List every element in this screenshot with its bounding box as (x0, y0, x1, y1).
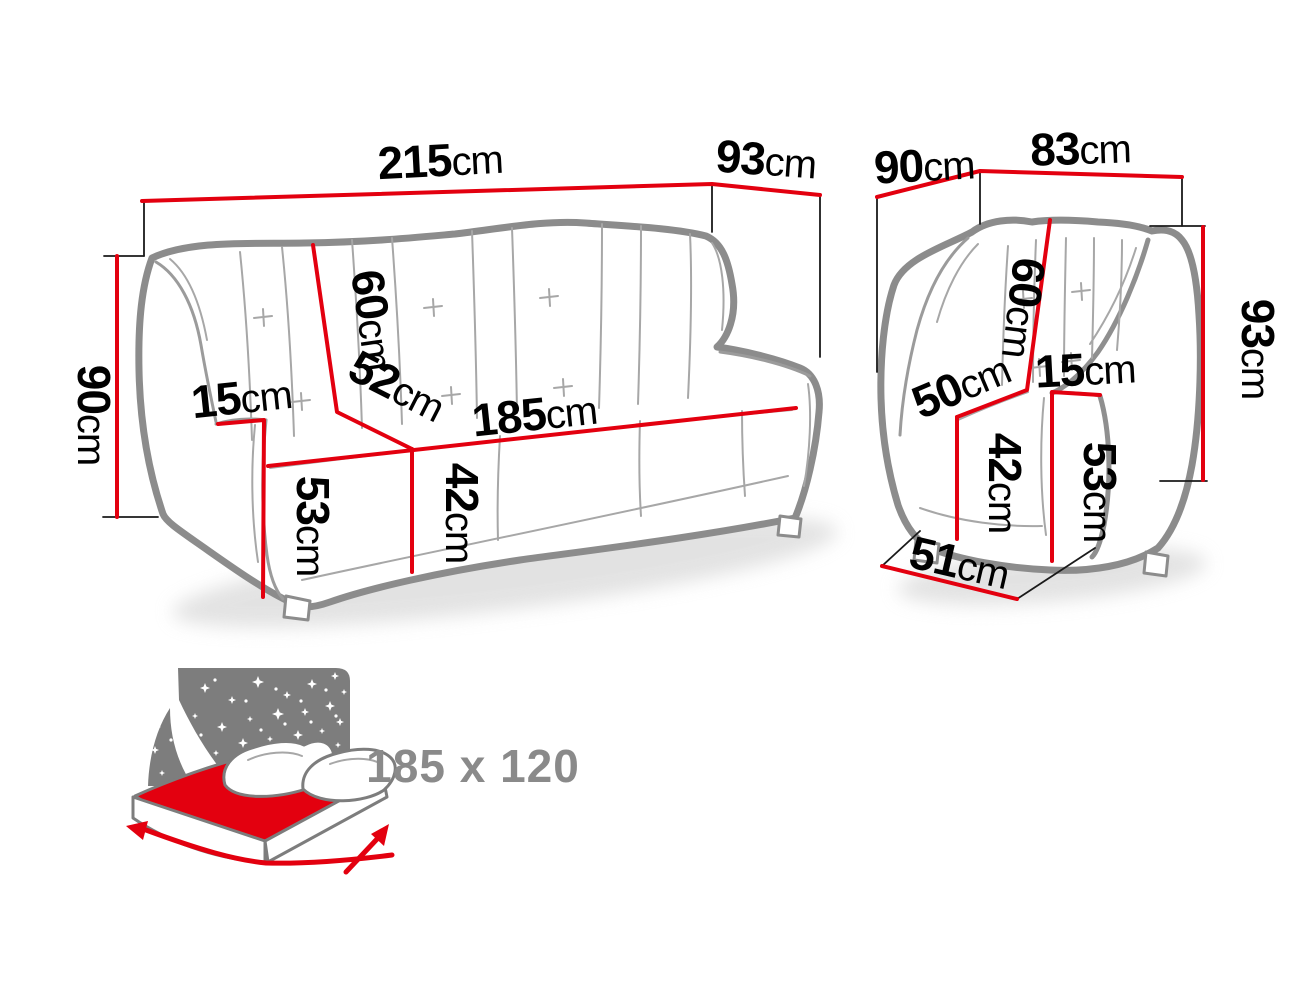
star-dot (169, 738, 172, 741)
bed-width-arrowhead (126, 821, 148, 840)
sofa-foot (778, 516, 801, 537)
star-dot (213, 678, 216, 681)
bed-sleeping-area-label: 185 x 120 (366, 740, 580, 792)
sofa-width-label: 215cm (376, 131, 504, 189)
armchair-depth-label: 90cm (873, 136, 976, 193)
star-dot (274, 687, 277, 690)
star-icon (186, 740, 194, 748)
furniture-dimension-diagram-page: { "colors": { "dimension_line": "#e3000f… (0, 0, 1315, 986)
star-dot (199, 733, 202, 736)
furniture-dimensions-diagram: 185 x 120 215cm 93cm 90cm 60cm (0, 0, 1315, 986)
sofa-seat-height-label: 42cm (436, 463, 488, 564)
star-dot (184, 759, 187, 762)
star-dot (259, 728, 262, 731)
star-dot (283, 722, 286, 725)
armchair-width-label: 83cm (1029, 120, 1131, 175)
star-dot (309, 720, 312, 723)
sofa-armrest-height-label: 53cm (287, 476, 339, 577)
star-dot (244, 699, 247, 702)
star-dot (196, 756, 199, 759)
bed-sleeping-area-icon: 185 x 120 (126, 668, 580, 872)
sofa-foot (284, 596, 310, 620)
star-dot (324, 688, 327, 691)
star-dot (299, 699, 302, 702)
star-dot (334, 714, 337, 717)
sofa-depth-label: 93cm (714, 130, 818, 189)
sofa-width-depth-line (142, 184, 820, 201)
armchair-foot (1144, 552, 1168, 576)
armchair-seat-height-label: 42cm (979, 433, 1031, 534)
armchair-armrest-height-label: 53cm (1074, 442, 1126, 543)
sofa-height-label: 90cm (68, 365, 120, 466)
armchair-height-label: 93cm (1232, 299, 1284, 400)
